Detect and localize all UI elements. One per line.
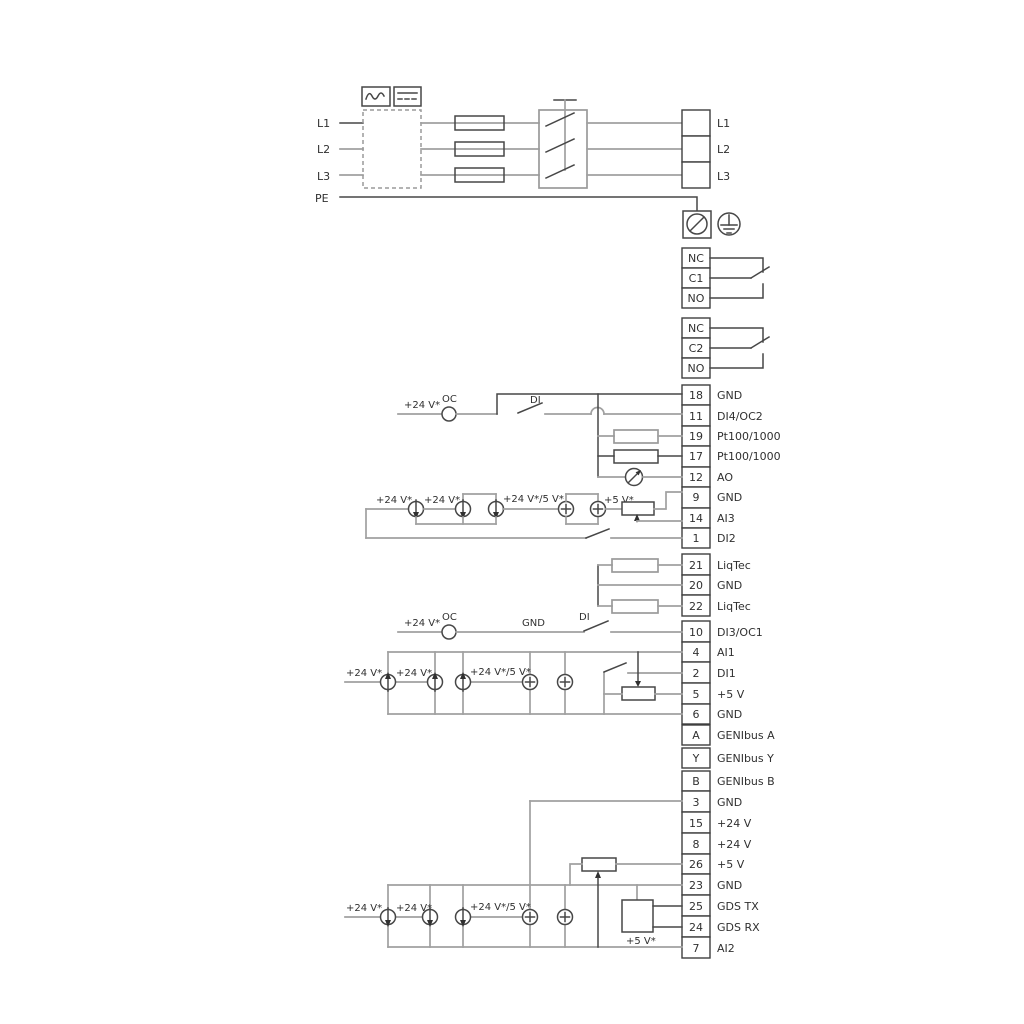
potentiometer-icon <box>622 687 655 700</box>
ai2-gds-circuit: +24 V* +24 V* +24 V*/5 V* <box>345 801 682 947</box>
terminal-number: Y <box>692 752 700 765</box>
terminal-label: GND <box>717 491 742 504</box>
terminal-number: 1 <box>693 532 700 545</box>
resistor-icon <box>612 600 658 613</box>
di4-oc2-circuit: +24 V* OC DI <box>398 394 682 486</box>
terminal-number: 20 <box>689 579 703 592</box>
relay2-nc: NC <box>688 322 704 335</box>
terminal-label: GND <box>717 389 742 402</box>
ac-symbol-icon <box>362 87 390 106</box>
terminal-block-e: 3GND 15+24 V 8+24 V 26+5 V 23GND 25GDS T… <box>682 791 760 958</box>
terminal-block-a: 18GND 11DI4/OC2 19Pt100/1000 17Pt100/100… <box>682 385 781 548</box>
motor-label-l1: L1 <box>717 117 730 130</box>
v5-label: +5 V* <box>626 936 656 947</box>
relay-changeover-contact-icon <box>710 328 769 368</box>
terminal-label: +5 V <box>717 858 745 871</box>
terminal-number: 21 <box>689 559 703 572</box>
terminal-number: 22 <box>689 600 703 613</box>
terminal-number: B <box>692 775 700 788</box>
terminal-label: DI3/OC1 <box>717 626 763 639</box>
terminal-number: 8 <box>693 838 700 851</box>
terminal-label: AI3 <box>717 512 735 525</box>
terminal-number: 3 <box>693 796 700 809</box>
mains-input-section: L1 L2 L3 PE <box>315 87 740 238</box>
oc-label: OC <box>442 612 457 623</box>
earth-ground-icon <box>718 213 740 235</box>
relay-1-block: NC C1 NO <box>682 248 769 308</box>
potentiometer-icon <box>582 858 616 871</box>
v24-label: +24 V* <box>346 668 382 679</box>
v24-5-label: +24 V*/5 V* <box>470 667 531 678</box>
v24-label: +24 V* <box>396 668 432 679</box>
di-label: DI <box>579 612 590 623</box>
motor-label-l3: L3 <box>717 170 730 183</box>
resistor-icon <box>614 450 658 463</box>
meter-icon <box>626 469 643 486</box>
terminal-number: 14 <box>689 512 703 525</box>
switch-contact-icon <box>586 529 609 538</box>
terminal-number: 15 <box>689 817 703 830</box>
relay1-no: NO <box>688 292 705 305</box>
relay-changeover-contact-icon <box>710 258 769 298</box>
potentiometer-icon <box>622 502 654 522</box>
disconnect-switch-icon <box>539 100 587 188</box>
terminal-number: 7 <box>693 942 700 955</box>
oc-terminal-icon <box>442 407 456 421</box>
v24-label: +24 V* <box>404 400 440 411</box>
current-source-icon <box>381 908 396 927</box>
terminal-number: A <box>692 729 700 742</box>
motor-terminal-block: L1 L2 L3 <box>682 110 730 188</box>
terminal-number: 12 <box>689 471 703 484</box>
terminal-number: 4 <box>693 646 700 659</box>
current-source-icon <box>456 908 471 927</box>
switch-contact-icon <box>604 663 626 672</box>
screw-terminal-icon <box>683 211 711 238</box>
terminal-number: 10 <box>689 626 703 639</box>
terminal-number: 6 <box>693 708 700 721</box>
ai3-di2-circuit: +24 V* +24 V* +24 V*/5 V* <box>366 492 682 538</box>
terminal-label: DI2 <box>717 532 736 545</box>
oc-terminal-icon <box>442 625 456 639</box>
plus-source-icon <box>523 675 538 690</box>
dc-symbol-icon <box>394 87 421 106</box>
current-source-icon <box>456 672 471 691</box>
terminal-label: AI1 <box>717 646 735 659</box>
terminal-number: 24 <box>689 921 703 934</box>
gnd-label: GND <box>522 618 545 629</box>
wiring-diagram: L1 L2 L3 PE <box>0 0 1024 1024</box>
terminal-block-genibus: AGENIbus A YGENIbus Y BGENIbus B <box>682 725 775 791</box>
terminal-label: GND <box>717 796 742 809</box>
resistor-icon <box>612 559 658 572</box>
terminal-number: 5 <box>693 688 700 701</box>
terminal-label: GND <box>717 708 742 721</box>
plus-source-icon <box>558 910 573 925</box>
terminal-number: 26 <box>689 858 703 871</box>
terminal-label: GND <box>717 879 742 892</box>
terminal-label: +5 V <box>717 688 745 701</box>
filter-box <box>363 110 421 188</box>
terminal-number: 2 <box>693 667 700 680</box>
relay2-no: NO <box>688 362 705 375</box>
terminal-number: 23 <box>689 879 703 892</box>
liqtec-circuit <box>598 559 682 613</box>
v24-label: +24 V* <box>404 618 440 629</box>
wire-gnd-9 <box>654 492 682 509</box>
wire-pe <box>340 197 697 211</box>
mains-label-l2: L2 <box>317 143 330 156</box>
terminal-block-liqtec: 21LiqTec 20GND 22LiqTec <box>598 554 751 616</box>
plus-source-icon <box>559 502 574 517</box>
terminal-label: Pt100/1000 <box>717 430 781 443</box>
motor-label-l2: L2 <box>717 143 730 156</box>
resistor-icon <box>614 430 658 443</box>
terminal-label: GENIbus A <box>717 729 775 742</box>
v24-5-label: +24 V*/5 V* <box>470 902 531 913</box>
terminal-number: 25 <box>689 900 703 913</box>
terminal-label: GDS RX <box>717 921 760 934</box>
terminal-number: 9 <box>693 491 700 504</box>
terminal-label: AI2 <box>717 942 735 955</box>
v24-label: +24 V* <box>376 495 412 506</box>
relay1-nc: NC <box>688 252 704 265</box>
v24-label: +24 V* <box>346 903 382 914</box>
relay1-c1: C1 <box>689 272 704 285</box>
mains-label-l1: L1 <box>317 117 330 130</box>
terminal-number: 18 <box>689 389 703 402</box>
relay2-c2: C2 <box>689 342 704 355</box>
terminal-number: 11 <box>689 410 703 423</box>
v24-label: +24 V* <box>424 495 460 506</box>
relay-2-block: NC C2 NO <box>682 318 769 378</box>
terminal-label: Pt100/1000 <box>717 450 781 463</box>
mains-label-l3: L3 <box>317 170 330 183</box>
terminal-label: +24 V <box>717 838 752 851</box>
terminal-label: GND <box>717 579 742 592</box>
mains-label-pe: PE <box>315 192 329 205</box>
wiring-diagram-page: L1 L2 L3 PE <box>0 0 1024 1024</box>
terminal-label: LiqTec <box>717 559 751 572</box>
current-source-icon <box>423 908 438 927</box>
terminal-number: 19 <box>689 430 703 443</box>
terminal-label: DI4/OC2 <box>717 410 763 423</box>
ai1-di1-circuit: +24 V* +24 V* +24 V*/5 V* <box>345 652 682 714</box>
terminal-label: GENIbus Y <box>717 752 774 765</box>
current-source-icon <box>381 672 396 691</box>
terminal-label: LiqTec <box>717 600 751 613</box>
terminal-label: GDS TX <box>717 900 759 913</box>
terminal-label: DI1 <box>717 667 736 680</box>
oc-label: OC <box>442 394 457 405</box>
terminal-label: +24 V <box>717 817 752 830</box>
terminal-label: AO <box>717 471 733 484</box>
terminal-block-c: 10DI3/OC1 4AI1 2DI1 5+5 V 6GND <box>682 621 763 724</box>
terminal-label: GENIbus B <box>717 775 775 788</box>
plus-source-icon <box>558 675 573 690</box>
v24-5-label: +24 V*/5 V* <box>503 494 564 505</box>
plus-source-icon <box>523 910 538 925</box>
terminal-number: 17 <box>689 450 703 463</box>
gds-sensor-icon <box>622 900 653 932</box>
di3-oc1-circuit: +24 V* OC GND DI <box>398 612 682 639</box>
